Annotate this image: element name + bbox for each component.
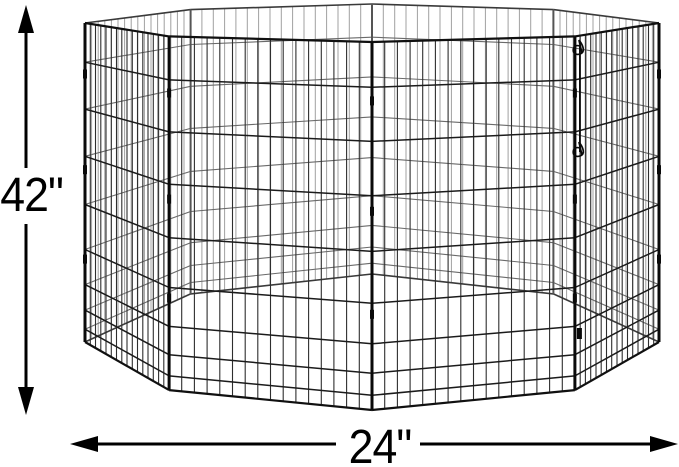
arrow-left-icon (70, 436, 98, 452)
arrow-up-icon (18, 5, 34, 33)
width-dimension-label: 24" (335, 424, 424, 467)
arrow-down-icon (18, 387, 34, 415)
product-dimension-diagram: 42" 24" (0, 0, 679, 467)
diagram-svg (0, 0, 679, 467)
height-dimension-label: 42" (0, 172, 60, 220)
arrow-right-icon (650, 436, 678, 452)
